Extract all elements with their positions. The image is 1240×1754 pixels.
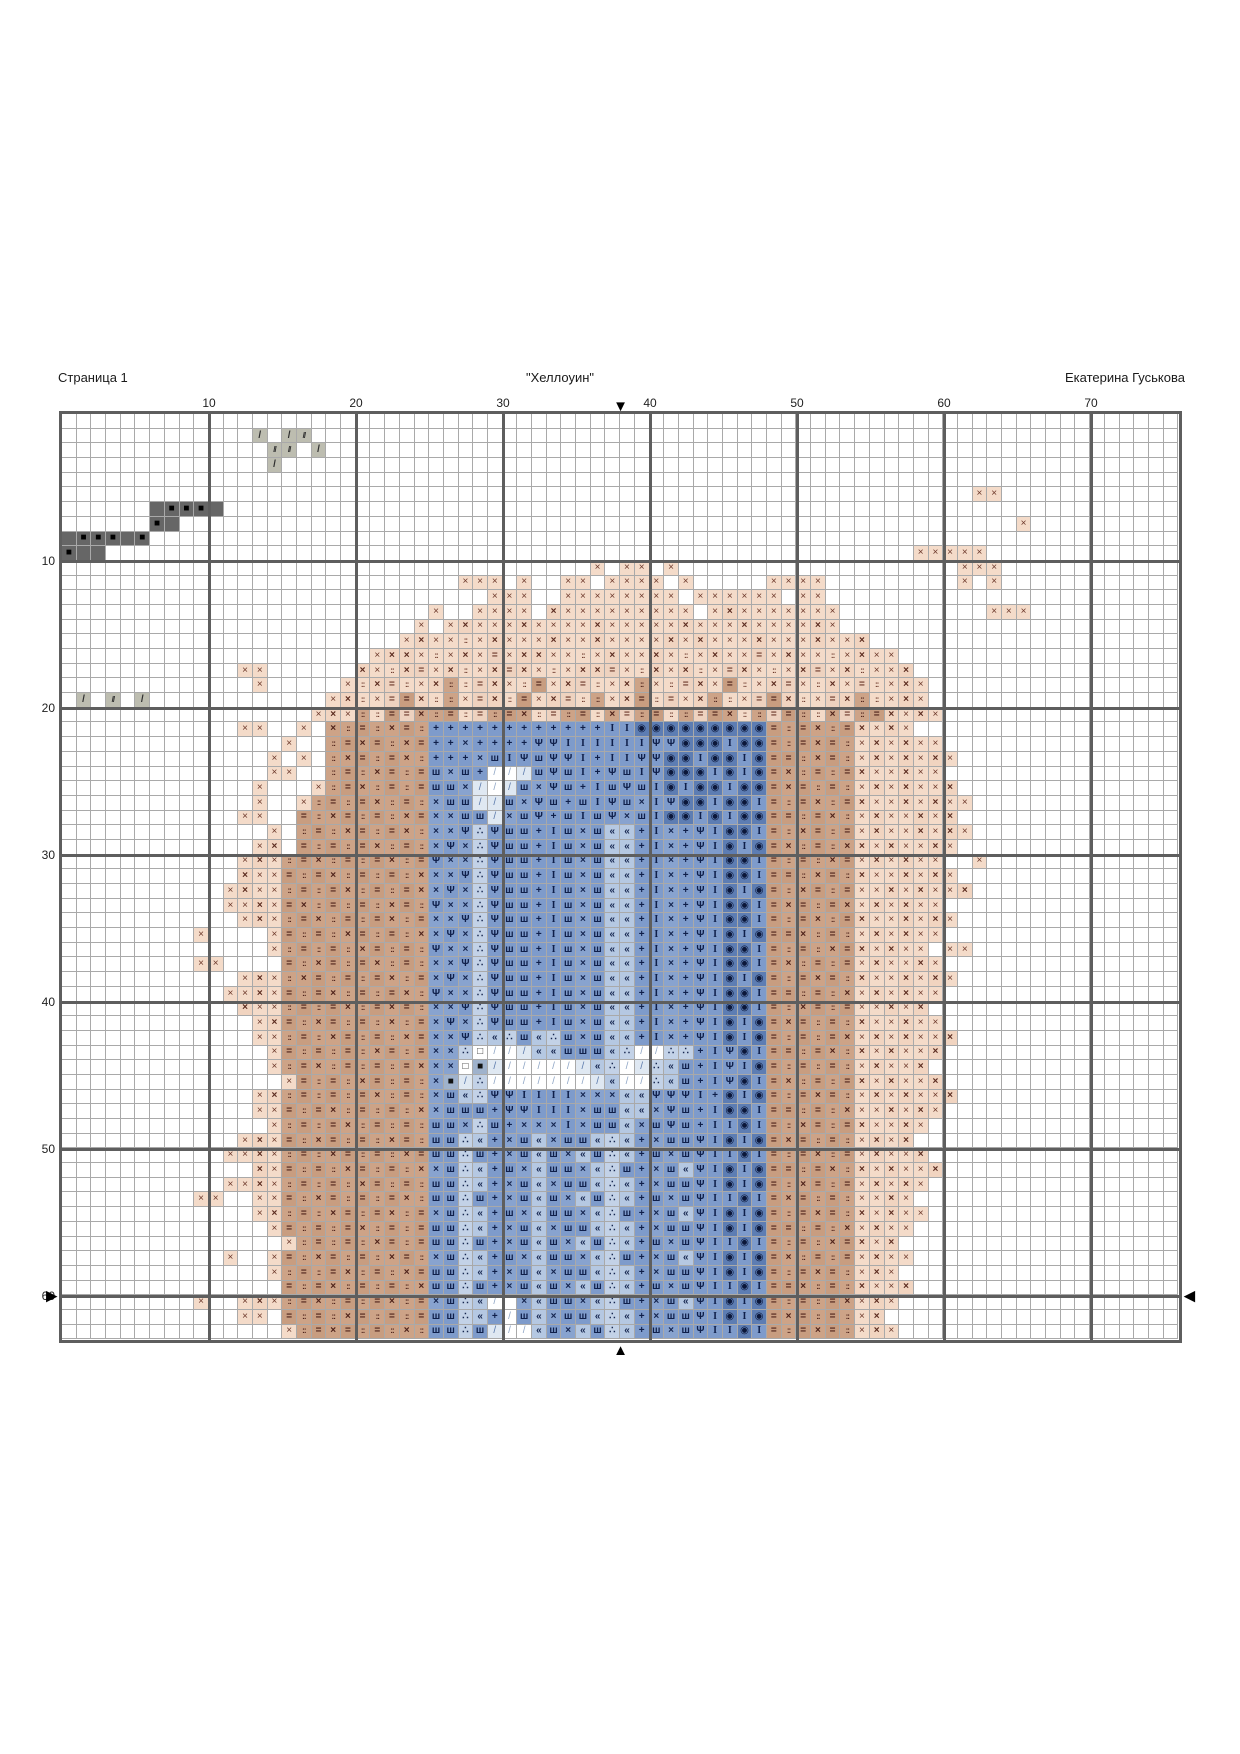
- pattern-cell: ∴: [473, 943, 488, 958]
- pattern-cell: ×: [929, 928, 944, 943]
- pattern-cell: ::: [297, 1192, 312, 1207]
- pattern-cell: [1002, 1222, 1017, 1237]
- pattern-cell: «: [620, 928, 635, 943]
- pattern-cell: [194, 487, 209, 502]
- pattern-cell: I: [561, 1104, 576, 1119]
- pattern-cell: =: [826, 1266, 841, 1281]
- pattern-cell: ::: [385, 943, 400, 958]
- pattern-cell: ×: [370, 693, 385, 708]
- pattern-cell: ×: [385, 1134, 400, 1149]
- pattern-cell: ш: [444, 1134, 459, 1149]
- pattern-cell: [1002, 634, 1017, 649]
- pattern-cell: [444, 546, 459, 561]
- pattern-cell: =: [811, 1075, 826, 1090]
- pattern-cell: [121, 1046, 136, 1061]
- pattern-cell: [1031, 664, 1046, 679]
- pattern-cell: [1149, 722, 1164, 737]
- pattern-cell: [282, 546, 297, 561]
- pattern-cell: [782, 458, 797, 473]
- pattern-cell: [209, 693, 224, 708]
- pattern-cell: [958, 1104, 973, 1119]
- pattern-cell: [150, 605, 165, 620]
- pattern-cell: ∴: [473, 987, 488, 1002]
- pattern-cell: ×: [914, 1119, 929, 1134]
- pattern-cell: ×: [385, 1251, 400, 1266]
- pattern-cell: =: [767, 825, 782, 840]
- pattern-cell: ∴: [605, 1325, 620, 1340]
- pattern-cell: ×: [899, 1222, 914, 1237]
- pattern-cell: ш: [561, 1310, 576, 1325]
- pattern-cell: ×: [914, 1016, 929, 1031]
- pattern-cell: [1031, 634, 1046, 649]
- pattern-cell: [180, 884, 195, 899]
- pattern-cell: [180, 1163, 195, 1178]
- pattern-cell: [1031, 1325, 1046, 1340]
- pattern-cell: [282, 649, 297, 664]
- pattern-cell: ×: [664, 561, 679, 576]
- pattern-cell: +: [532, 928, 547, 943]
- pattern-cell: [1149, 972, 1164, 987]
- pattern-cell: [752, 429, 767, 444]
- pattern-cell: ∴: [605, 1192, 620, 1207]
- pattern-cell: [150, 1060, 165, 1075]
- pattern-cell: ∴: [473, 884, 488, 899]
- pattern-cell: [62, 1046, 77, 1061]
- pattern-cell: [238, 1060, 253, 1075]
- pattern-cell: I: [723, 1119, 738, 1134]
- pattern-cell: ×: [885, 1192, 900, 1207]
- pattern-cell: [1017, 1119, 1032, 1134]
- pattern-cell: ×: [620, 664, 635, 679]
- pattern-cell: «: [620, 1266, 635, 1281]
- pattern-cell: [885, 487, 900, 502]
- pattern-cell: [767, 517, 782, 532]
- pattern-cell: I: [723, 1237, 738, 1252]
- pattern-cell: [1031, 502, 1046, 517]
- pattern-cell: [224, 664, 239, 679]
- pattern-cell: ∴: [473, 1119, 488, 1134]
- pattern-cell: [150, 943, 165, 958]
- pattern-cell: [1017, 502, 1032, 517]
- pattern-cell: ×: [312, 781, 327, 796]
- pattern-cell: [855, 561, 870, 576]
- pattern-cell: [1120, 1075, 1135, 1090]
- pattern-cell: [62, 693, 77, 708]
- pattern-cell: ::: [326, 1046, 341, 1061]
- pattern-cell: ::: [811, 1031, 826, 1046]
- pattern-cell: ::: [341, 1251, 356, 1266]
- pattern-cell: [973, 781, 988, 796]
- pattern-cell: [150, 1134, 165, 1149]
- pattern-cell: =: [517, 693, 532, 708]
- pattern-cell: [385, 414, 400, 429]
- pattern-cell: ::: [341, 943, 356, 958]
- pattern-cell: ×: [400, 1266, 415, 1281]
- pattern-cell: [1105, 532, 1120, 547]
- pattern-cell: +: [532, 840, 547, 855]
- pattern-cell: [517, 561, 532, 576]
- pattern-cell: [987, 1281, 1002, 1296]
- pattern-cell: ::: [708, 693, 723, 708]
- pattern-cell: ×: [238, 987, 253, 1002]
- pattern-cell: [694, 458, 709, 473]
- pattern-cell: =: [297, 840, 312, 855]
- pattern-cell: ×: [268, 1207, 283, 1222]
- pattern-cell: [1075, 781, 1090, 796]
- pattern-cell: ×: [840, 1104, 855, 1119]
- pattern-cell: +: [488, 1178, 503, 1193]
- pattern-cell: [473, 458, 488, 473]
- pattern-cell: [312, 693, 327, 708]
- pattern-cell: [91, 458, 106, 473]
- pattern-cell: +: [679, 957, 694, 972]
- pattern-cell: [415, 517, 430, 532]
- pattern-cell: [1031, 987, 1046, 1002]
- pattern-cell: [253, 1222, 268, 1237]
- pattern-cell: ×: [635, 649, 650, 664]
- pattern-cell: [370, 590, 385, 605]
- pattern-cell: [1031, 825, 1046, 840]
- pattern-cell: ×: [268, 1251, 283, 1266]
- pattern-cell: [165, 1237, 180, 1252]
- pattern-cell: [1075, 884, 1090, 899]
- pattern-cell: ш: [517, 840, 532, 855]
- pattern-cell: [1164, 1266, 1179, 1281]
- pattern-cell: [238, 546, 253, 561]
- pattern-cell: [1120, 1016, 1135, 1031]
- pattern-cell: [1046, 1281, 1061, 1296]
- pattern-cell: ×: [782, 767, 797, 782]
- pattern-cell: ×: [708, 678, 723, 693]
- pattern-cell: [194, 590, 209, 605]
- pattern-cell: [870, 429, 885, 444]
- pattern-cell: [1105, 1119, 1120, 1134]
- pattern-cell: ×: [855, 987, 870, 1002]
- pattern-cell: ◉: [694, 737, 709, 752]
- pattern-cell: =: [767, 752, 782, 767]
- pattern-cell: [1031, 1251, 1046, 1266]
- pattern-cell: [1105, 957, 1120, 972]
- pattern-cell: [694, 443, 709, 458]
- pattern-cell: [547, 502, 562, 517]
- pattern-cell: ×: [694, 620, 709, 635]
- pattern-cell: [1164, 1134, 1179, 1149]
- pattern-cell: ×: [811, 752, 826, 767]
- pattern-cell: [899, 634, 914, 649]
- pattern-cell: [1075, 1325, 1090, 1340]
- pattern-cell: [973, 532, 988, 547]
- pattern-cell: «: [576, 1192, 591, 1207]
- pattern-cell: [209, 811, 224, 826]
- pattern-cell: ш: [547, 1163, 562, 1178]
- pattern-cell: [620, 502, 635, 517]
- pattern-cell: ×: [870, 972, 885, 987]
- pattern-cell: =: [826, 1207, 841, 1222]
- pattern-cell: ■: [77, 532, 92, 547]
- pattern-cell: [77, 972, 92, 987]
- pattern-cell: «: [591, 1207, 606, 1222]
- pattern-cell: ×: [312, 957, 327, 972]
- pattern-cell: =: [811, 957, 826, 972]
- pattern-cell: ::: [370, 899, 385, 914]
- pattern-cell: ::: [326, 1060, 341, 1075]
- pattern-cell: [840, 429, 855, 444]
- pattern-cell: ш: [561, 1207, 576, 1222]
- pattern-cell: [987, 678, 1002, 693]
- pattern-cell: I: [547, 1090, 562, 1105]
- pattern-cell: ш: [429, 1237, 444, 1252]
- pattern-cell: [135, 913, 150, 928]
- pattern-cell: [987, 1163, 1002, 1178]
- pattern-cell: «: [473, 1163, 488, 1178]
- pattern-cell: [1046, 840, 1061, 855]
- pattern-cell: [135, 1119, 150, 1134]
- pattern-cell: ×: [400, 649, 415, 664]
- pattern-cell: ш: [444, 1237, 459, 1252]
- pattern-cell: [91, 722, 106, 737]
- pattern-cell: [282, 517, 297, 532]
- pattern-cell: [1120, 473, 1135, 488]
- pattern-cell: [106, 1237, 121, 1252]
- pattern-cell: [121, 1222, 136, 1237]
- pattern-cell: [1031, 1266, 1046, 1281]
- pattern-cell: [885, 473, 900, 488]
- pattern-cell: [987, 811, 1002, 826]
- pattern-cell: ×: [282, 1075, 297, 1090]
- pattern-cell: [1002, 1016, 1017, 1031]
- pattern-cell: [1134, 693, 1149, 708]
- pattern-cell: ×: [664, 928, 679, 943]
- pattern-cell: ×: [385, 649, 400, 664]
- pattern-cell: [1120, 869, 1135, 884]
- pattern-cell: ∴: [473, 928, 488, 943]
- pattern-cell: [987, 796, 1002, 811]
- pattern-cell: [1061, 443, 1076, 458]
- pattern-cell: Ψ: [444, 972, 459, 987]
- pattern-cell: [150, 1119, 165, 1134]
- pattern-cell: [150, 693, 165, 708]
- pattern-cell: [987, 1046, 1002, 1061]
- pattern-cell: [899, 605, 914, 620]
- pattern-cell: /: [635, 1075, 650, 1090]
- pattern-cell: ×: [738, 649, 753, 664]
- pattern-cell: [77, 1046, 92, 1061]
- pattern-cell: ◉: [664, 752, 679, 767]
- pattern-cell: [1075, 1251, 1090, 1266]
- pattern-cell: [620, 414, 635, 429]
- pattern-cell: [958, 693, 973, 708]
- pattern-cell: ×: [370, 1046, 385, 1061]
- pattern-cell: =: [370, 737, 385, 752]
- pattern-cell: [312, 414, 327, 429]
- pattern-cell: [694, 605, 709, 620]
- pattern-cell: [121, 1031, 136, 1046]
- pattern-cell: +: [532, 899, 547, 914]
- pattern-cell: ш: [605, 1119, 620, 1134]
- pattern-cell: [1002, 722, 1017, 737]
- pattern-cell: ×: [459, 1016, 474, 1031]
- pattern-cell: ::: [811, 1192, 826, 1207]
- pattern-cell: //: [282, 443, 297, 458]
- pattern-cell: ■: [106, 532, 121, 547]
- pattern-cell: [209, 1075, 224, 1090]
- pattern-cell: [914, 517, 929, 532]
- pattern-cell: ×: [899, 840, 914, 855]
- pattern-cell: [1017, 1163, 1032, 1178]
- pattern-cell: [91, 811, 106, 826]
- pattern-cell: [209, 972, 224, 987]
- pattern-cell: ш: [517, 869, 532, 884]
- pattern-cell: [473, 443, 488, 458]
- pattern-cell: =: [385, 825, 400, 840]
- pattern-cell: [224, 620, 239, 635]
- pattern-cell: ::: [326, 825, 341, 840]
- pattern-cell: ::: [723, 693, 738, 708]
- pattern-cell: ш: [591, 928, 606, 943]
- pattern-cell: [929, 561, 944, 576]
- pattern-cell: [106, 664, 121, 679]
- pattern-cell: [121, 634, 136, 649]
- pattern-cell: [1164, 1016, 1179, 1031]
- pattern-cell: [1134, 634, 1149, 649]
- pattern-cell: ×: [429, 1016, 444, 1031]
- pattern-cell: ∴: [605, 1134, 620, 1149]
- pattern-cell: ×: [620, 678, 635, 693]
- pattern-cell: [1164, 561, 1179, 576]
- pattern-cell: =: [326, 796, 341, 811]
- pattern-cell: [1002, 443, 1017, 458]
- pattern-cell: [1002, 869, 1017, 884]
- pattern-cell: [77, 1178, 92, 1193]
- pattern-cell: =: [400, 1090, 415, 1105]
- pattern-cell: [253, 825, 268, 840]
- pattern-cell: Ψ: [694, 840, 709, 855]
- pattern-cell: [150, 767, 165, 782]
- pattern-cell: [62, 1104, 77, 1119]
- pattern-cell: ×: [238, 722, 253, 737]
- pattern-cell: [91, 1281, 106, 1296]
- pattern-cell: [1105, 928, 1120, 943]
- pattern-cell: [1075, 1119, 1090, 1134]
- pattern-cell: [929, 443, 944, 458]
- pattern-cell: ::: [385, 840, 400, 855]
- pattern-cell: ×: [635, 605, 650, 620]
- pattern-cell: ш: [517, 913, 532, 928]
- pattern-cell: [77, 767, 92, 782]
- pattern-cell: [121, 1016, 136, 1031]
- pattern-cell: ×: [679, 620, 694, 635]
- pattern-cell: ∴: [459, 1222, 474, 1237]
- pattern-cell: ×: [370, 767, 385, 782]
- pattern-cell: [1134, 561, 1149, 576]
- pattern-cell: [91, 928, 106, 943]
- pattern-cell: «: [620, 957, 635, 972]
- pattern-cell: ш: [591, 913, 606, 928]
- pattern-cell: ×: [400, 1192, 415, 1207]
- pattern-cell: [1017, 1281, 1032, 1296]
- pattern-cell: ш: [459, 796, 474, 811]
- pattern-cell: [282, 693, 297, 708]
- pattern-cell: [62, 1075, 77, 1090]
- pattern-cell: [415, 546, 430, 561]
- pattern-cell: [282, 752, 297, 767]
- pattern-cell: [914, 1266, 929, 1281]
- pattern-cell: I: [605, 752, 620, 767]
- pattern-cell: [738, 429, 753, 444]
- pattern-cell: ×: [782, 1251, 797, 1266]
- pattern-cell: =: [370, 1207, 385, 1222]
- pattern-cell: ×: [444, 899, 459, 914]
- pattern-cell: +: [488, 722, 503, 737]
- pattern-cell: [1164, 869, 1179, 884]
- pattern-cell: [958, 1046, 973, 1061]
- pattern-cell: ◉: [752, 1251, 767, 1266]
- pattern-cell: [973, 913, 988, 928]
- pattern-cell: [826, 532, 841, 547]
- pattern-cell: ×: [870, 752, 885, 767]
- pattern-cell: ::: [312, 1075, 327, 1090]
- pattern-cell: ш: [517, 1222, 532, 1237]
- pattern-cell: [268, 1310, 283, 1325]
- pattern-cell: [180, 767, 195, 782]
- pattern-cell: ×: [855, 1266, 870, 1281]
- pattern-cell: ×: [870, 1090, 885, 1105]
- pattern-cell: [106, 458, 121, 473]
- pattern-cell: [1149, 1192, 1164, 1207]
- pattern-cell: [958, 987, 973, 1002]
- pattern-cell: [738, 414, 753, 429]
- pattern-cell: [929, 473, 944, 488]
- pattern-cell: =: [576, 678, 591, 693]
- pattern-cell: [973, 1046, 988, 1061]
- pattern-cell: [121, 1075, 136, 1090]
- pattern-cell: [429, 414, 444, 429]
- pattern-cell: [282, 561, 297, 576]
- pattern-cell: ×: [899, 957, 914, 972]
- pattern-cell: ◉: [738, 1119, 753, 1134]
- pattern-cell: [929, 1060, 944, 1075]
- pattern-cell: ×: [605, 590, 620, 605]
- pattern-cell: [1046, 561, 1061, 576]
- pattern-cell: [517, 502, 532, 517]
- pattern-cell: [312, 722, 327, 737]
- pattern-cell: [297, 473, 312, 488]
- pattern-cell: [62, 1178, 77, 1193]
- pattern-cell: ::: [826, 957, 841, 972]
- pattern-cell: =: [297, 811, 312, 826]
- pattern-cell: I: [576, 737, 591, 752]
- pattern-cell: [77, 1119, 92, 1134]
- pattern-cell: ::: [415, 1192, 430, 1207]
- pattern-cell: Ψ: [694, 1134, 709, 1149]
- pattern-cell: [165, 532, 180, 547]
- pattern-cell: [150, 576, 165, 591]
- pattern-cell: ::: [826, 649, 841, 664]
- pattern-cell: /: [517, 1325, 532, 1340]
- pattern-cell: [224, 752, 239, 767]
- pattern-cell: [605, 487, 620, 502]
- pattern-cell: =: [561, 693, 576, 708]
- row-label: 30: [31, 848, 55, 862]
- pattern-cell: [1075, 634, 1090, 649]
- pattern-cell: [1134, 1104, 1149, 1119]
- pattern-cell: [253, 1046, 268, 1061]
- pattern-cell: ш: [620, 796, 635, 811]
- pattern-cell: [914, 429, 929, 444]
- pattern-cell: [209, 943, 224, 958]
- pattern-cell: [77, 664, 92, 679]
- pattern-cell: ×: [605, 678, 620, 693]
